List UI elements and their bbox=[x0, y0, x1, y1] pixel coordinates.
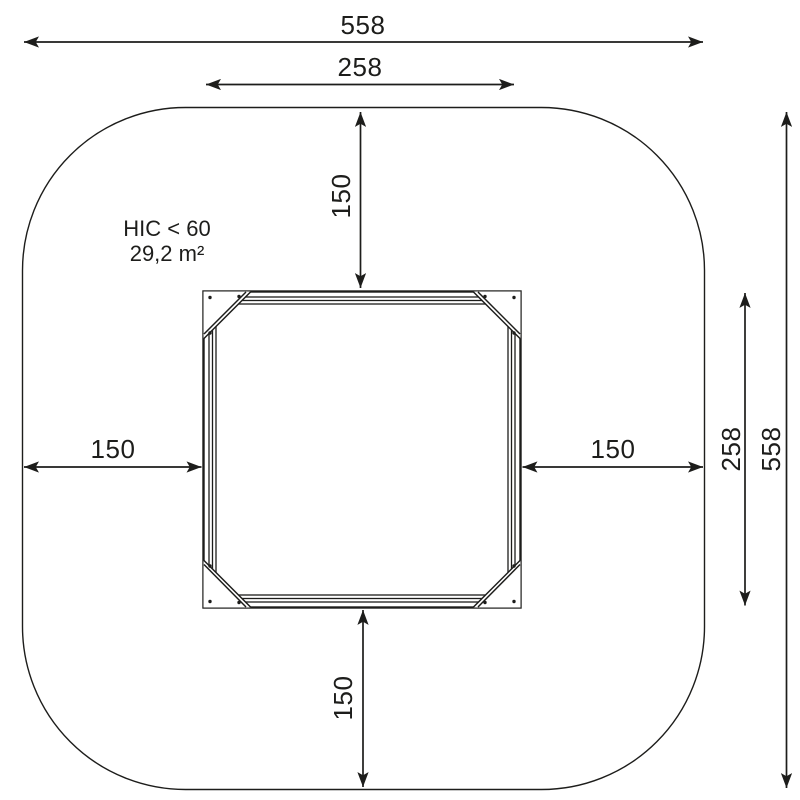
screw-dot bbox=[512, 564, 515, 567]
plank-line-middle bbox=[213, 301, 512, 599]
dim-label-outer-width: 558 bbox=[341, 10, 386, 40]
screw-dot bbox=[208, 296, 211, 299]
screw-dot bbox=[512, 296, 515, 299]
dim-label-clearance-top: 150 bbox=[326, 174, 356, 219]
dim-label-clearance-bottom: 150 bbox=[328, 676, 358, 721]
dim-label-outer-height: 558 bbox=[756, 427, 786, 472]
sandbox-plank-lines bbox=[209, 297, 515, 602]
corner-seats bbox=[204, 292, 521, 608]
screw-dot bbox=[208, 331, 211, 334]
dimension-arrows bbox=[24, 42, 787, 788]
screw-dot bbox=[483, 601, 486, 604]
drawing-canvas: 558 258 150 150 150 150 258 558 HIC < 60… bbox=[0, 0, 800, 800]
plank-line-inner bbox=[216, 304, 508, 595]
dim-label-clearance-right: 150 bbox=[591, 434, 636, 464]
screw-dot bbox=[237, 601, 240, 604]
sandbox-frame-outline bbox=[204, 292, 521, 608]
dim-label-inner-height: 258 bbox=[716, 427, 746, 472]
screw-dot bbox=[208, 564, 211, 567]
screw-dot bbox=[208, 600, 211, 603]
dim-label-inner-width: 258 bbox=[338, 52, 383, 82]
dim-label-clearance-left: 150 bbox=[91, 434, 136, 464]
area-annotation: 29,2 m² bbox=[130, 241, 205, 266]
screw-dot bbox=[512, 331, 515, 334]
dimension-drawing: 558 258 150 150 150 150 258 558 HIC < 60… bbox=[0, 0, 800, 800]
hic-annotation: HIC < 60 bbox=[123, 216, 210, 241]
plank-line-outer bbox=[209, 297, 515, 602]
screw-dot bbox=[512, 600, 515, 603]
screw-dot bbox=[483, 295, 486, 298]
screw-dot bbox=[237, 295, 240, 298]
screw-dots bbox=[208, 295, 515, 604]
